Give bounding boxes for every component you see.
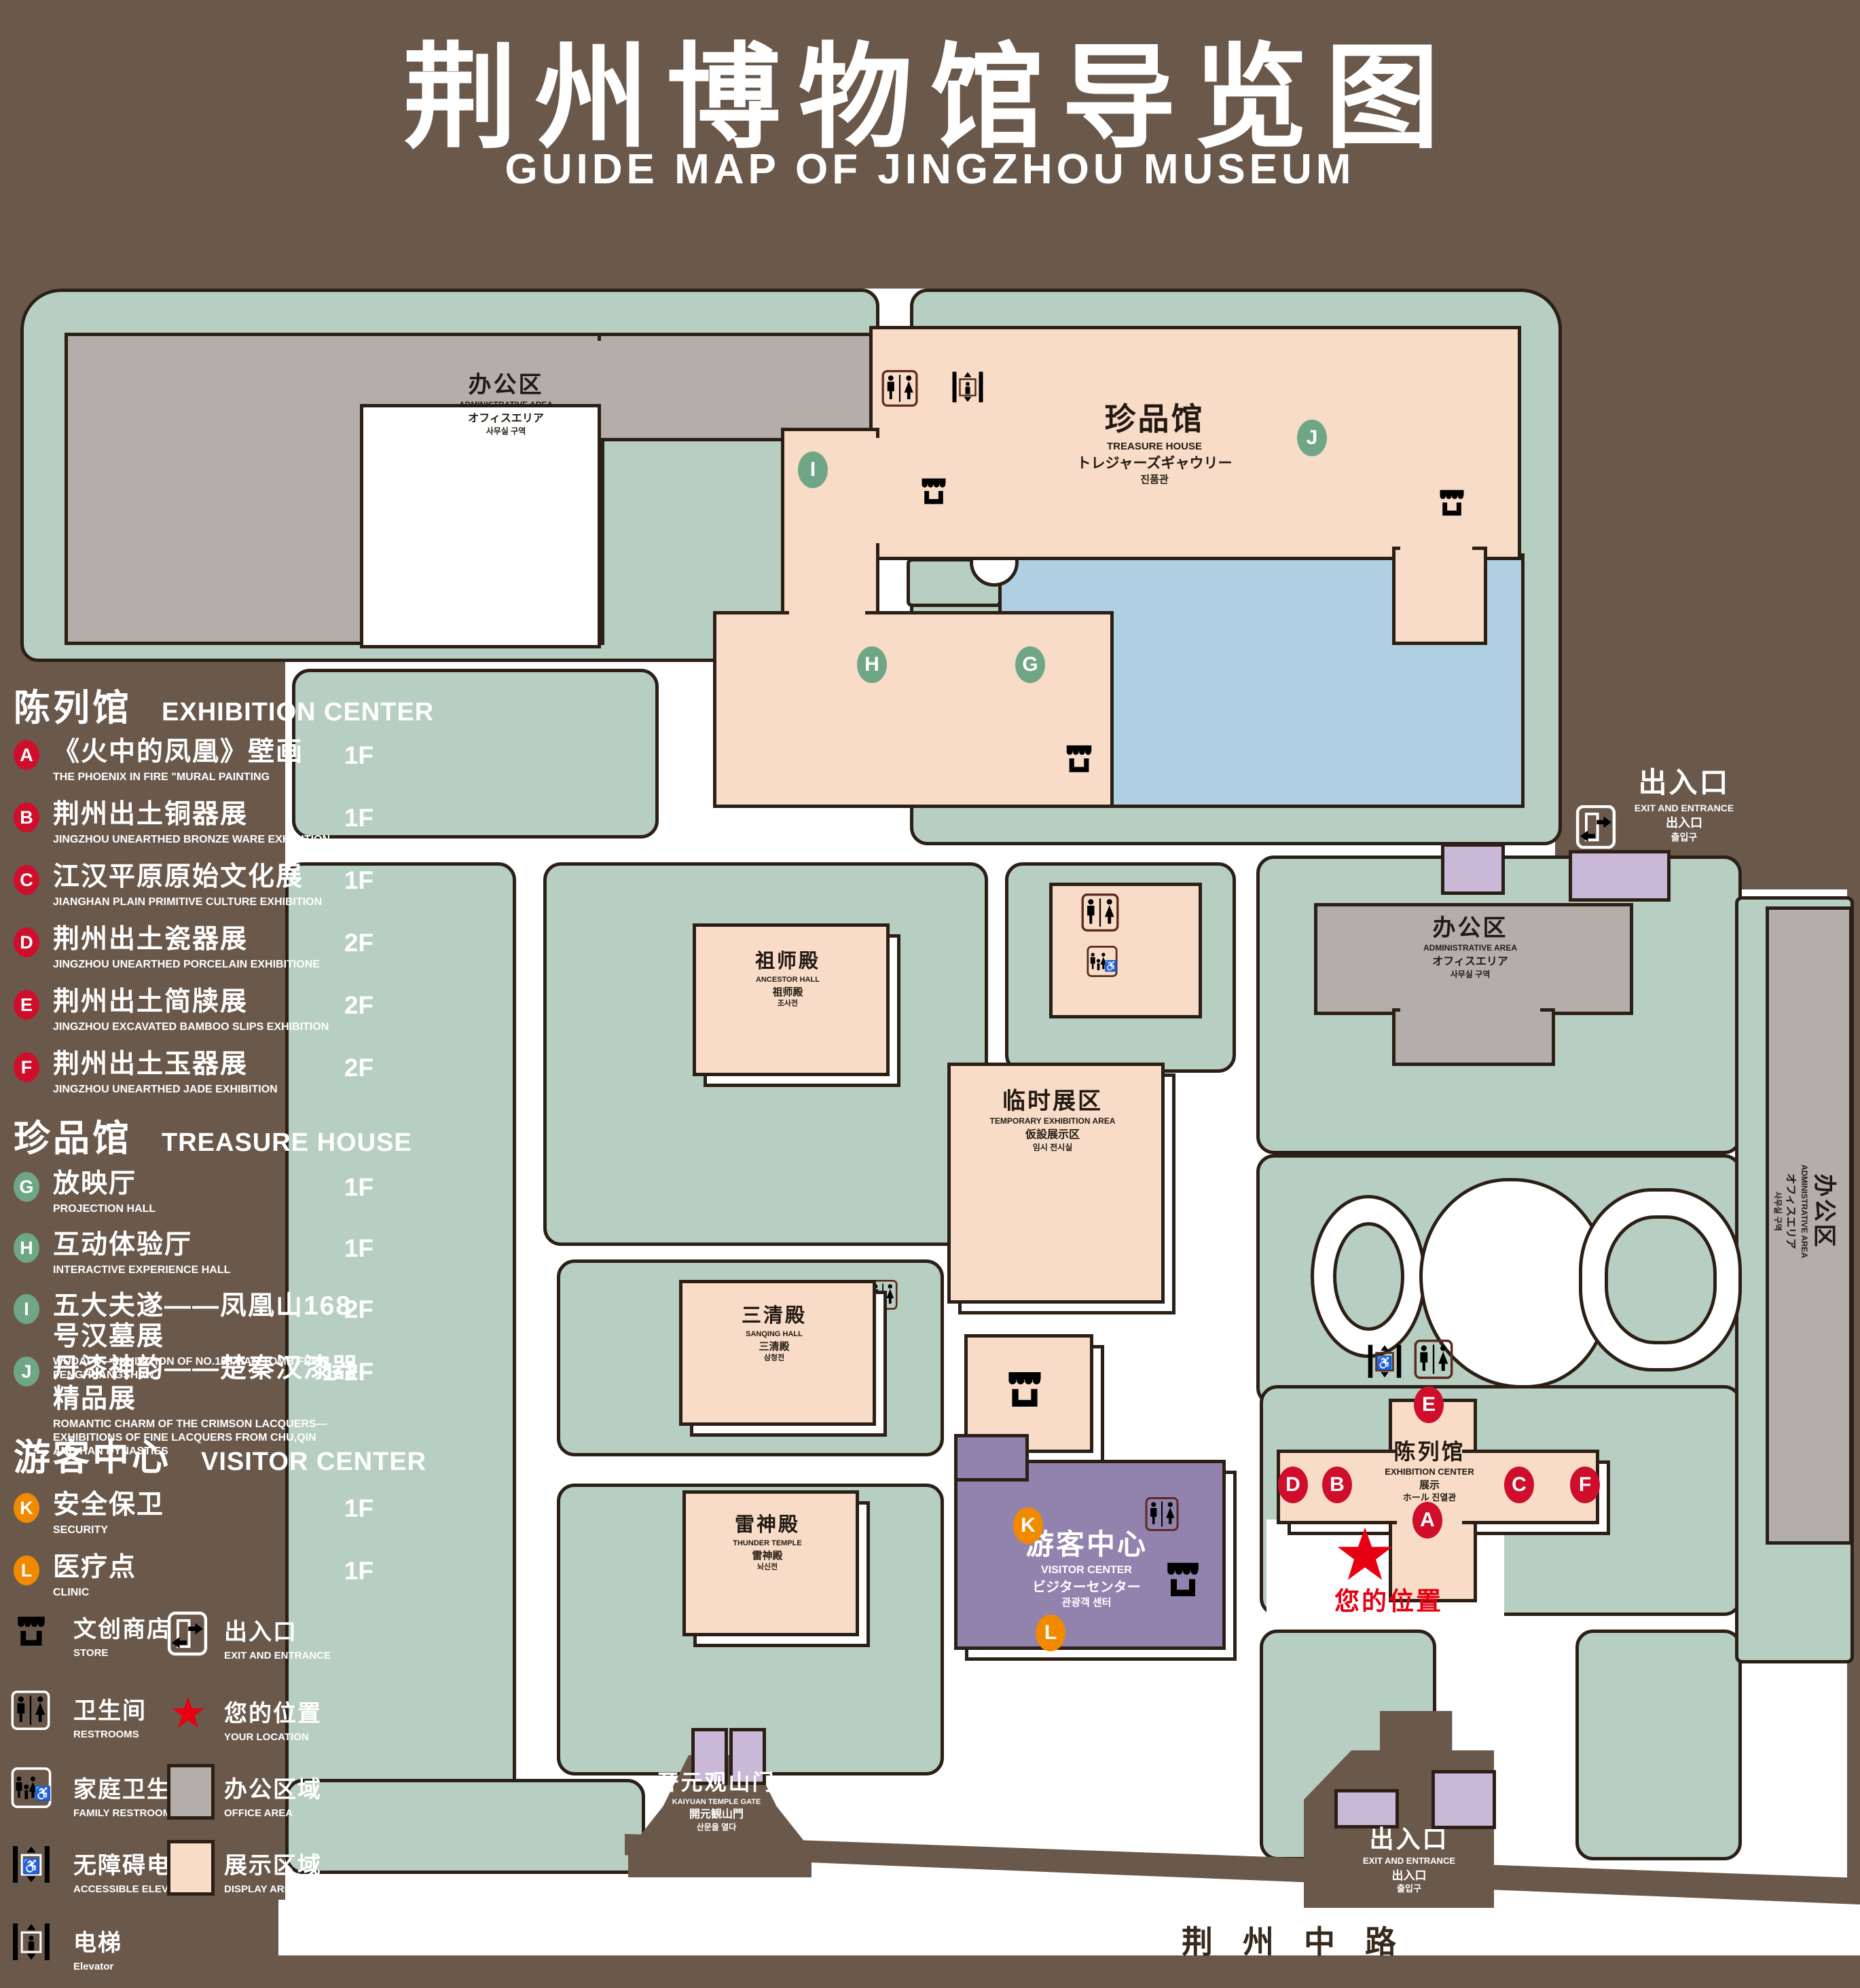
map-marker-f: F <box>1570 1467 1600 1503</box>
marker-badge: F <box>14 1052 39 1082</box>
store-icon <box>1436 483 1467 523</box>
road-name: 荆州中路 <box>1059 1917 1548 1962</box>
legend-item-b: B 荆州出土铜器展 JINGZHOU UNEARTHED BRONZE WARE… <box>14 800 373 847</box>
admin-nw-label: 办公区 ADMINISTRATIVE AREA オフィスエリア 사무실 구역 <box>370 370 642 437</box>
map-marker-k: K <box>1013 1507 1043 1544</box>
admin-courtyard <box>360 404 601 648</box>
seam <box>1400 1001 1540 1018</box>
legend-item-h: H 互动体验厅 INTERACTIVE EXPERIENCE HALL 1F <box>14 1230 373 1277</box>
map-marker-h: H <box>857 646 887 683</box>
map-marker-i: I <box>798 452 828 488</box>
store-icon <box>14 1612 49 1651</box>
office-area-swatch <box>167 1764 215 1820</box>
legend-item-f: F 荆州出土玉器展 JINGZHOU UNEARTHED JADE EXHIBI… <box>14 1050 373 1097</box>
legend-symbol-elevator: 电梯 Elevator <box>73 1924 122 1972</box>
marker-badge: L <box>14 1556 39 1585</box>
display-area-swatch <box>167 1840 215 1896</box>
treasure-house-east-wing <box>1392 547 1487 645</box>
legend-symbol-store: 文创商店 STORE <box>73 1610 171 1659</box>
accessible-elevator-icon <box>1366 1339 1403 1384</box>
seam <box>961 1460 1017 1476</box>
exit-northeast-label: 出入口 EXIT AND ENTRANCE 出入口 출입구 <box>1603 765 1766 843</box>
elevator-icon <box>951 365 985 409</box>
legend-symbol-restrooms: 卫生间 RESTROOMS <box>73 1692 147 1740</box>
guide-map-page: 荆州博物馆导览图 GUIDE MAP OF JINGZHOU MUSEUM 办公… <box>0 0 1860 1988</box>
marker-badge: H <box>14 1233 39 1263</box>
map-marker-g: G <box>1015 646 1045 683</box>
legend-section-treasure-house: 珍品馆TREASURE HOUSE <box>14 1108 412 1162</box>
store-icon <box>1063 739 1095 779</box>
green-area-south-two <box>1575 1630 1742 1860</box>
garden-island-east <box>1605 1215 1717 1344</box>
sanqing-hall-label: 三清殿 SANQING HALL 三清殿 삼청전 <box>686 1304 862 1363</box>
family-restroom-icon <box>11 1760 52 1816</box>
marker-badge: A <box>14 740 39 770</box>
store-icon <box>1163 1556 1203 1604</box>
green-area-southwest <box>285 1779 645 1874</box>
legend-symbol-exit: 出入口 EXIT AND ENTRANCE <box>224 1613 331 1661</box>
your-location-icon <box>1336 1526 1393 1583</box>
kaiyuan-gate-label: 开元观山门 KAIYUAN TEMPLE GATE 開元観山門 산문을 열다 <box>615 1769 818 1833</box>
small-building <box>1441 843 1505 895</box>
legend-symbol-office-area: 办公区域 OFFICE AREA <box>224 1771 322 1819</box>
temporary-exhibition-label: 临时展区 TEMPORARY EXHIBITION AREA 仮設展示区 임시 … <box>934 1086 1171 1153</box>
legend-item-d: D 荆州出土瓷器展 JINGZHOU UNEARTHED PORCELAIN E… <box>14 925 373 972</box>
restroom-icon <box>1414 1336 1453 1382</box>
garden-island-west <box>1333 1222 1404 1331</box>
ancestor-hall-label: 祖师殿 ANCESTOR HALL 祖师殿 조사전 <box>699 949 876 1009</box>
admin-east-label: 办公区 ADMINISTRATIVE AREA オフィスエリア 사무실 구역 <box>1334 913 1606 980</box>
legend-item-l: L 医疗点 CLINIC 1F <box>14 1553 373 1600</box>
map-marker-e: E <box>1414 1386 1444 1423</box>
legend-section-visitor-center: 游客中心VISITOR CENTER <box>14 1427 426 1481</box>
map-marker-j: J <box>1297 420 1327 456</box>
small-building <box>1432 1770 1496 1829</box>
seam <box>864 438 881 543</box>
small-building <box>1569 850 1671 902</box>
restroom-building <box>1049 883 1202 1018</box>
store-icon <box>918 472 949 511</box>
store-icon <box>1004 1365 1046 1415</box>
page-subtitle: GUIDE MAP OF JINGZHOU MUSEUM <box>0 145 1860 194</box>
exit-icon <box>166 1606 209 1661</box>
marker-badge: I <box>14 1294 39 1324</box>
restroom-icon <box>1081 891 1119 934</box>
map-marker-c: C <box>1504 1467 1534 1503</box>
legend-item-c: C 江汉平原原始文化展 JIANGHAN PLAIN PRIMITIVE CUL… <box>14 862 373 909</box>
restroom-icon <box>1145 1494 1179 1534</box>
your-location-icon <box>171 1696 205 1730</box>
exhibition-center-label: 陈列馆 EXHIBITION CENTER 展示 ホール 진열관 <box>1355 1438 1504 1504</box>
legend-item-g: G 放映厅 PROJECTION HALL 1F <box>14 1169 373 1216</box>
seam <box>789 603 865 621</box>
accessible-elevator-icon <box>11 1837 52 1892</box>
family-restroom-icon <box>1087 942 1118 980</box>
restroom-icon <box>881 367 918 410</box>
legend-item-k: K 安全保卫 SECURITY 1F <box>14 1490 373 1537</box>
elevator-icon <box>11 1915 52 1969</box>
your-location-label: 您的位置 <box>1307 1581 1470 1617</box>
map-marker-a: A <box>1412 1502 1442 1539</box>
marker-badge: J <box>14 1357 39 1386</box>
admin-side-label: 办公区 ADMINISTRATIVE AREA オフィスエリア 사무실 구역 <box>1772 1109 1839 1313</box>
treasure-house-label: 珍品馆 TREASURE HOUSE トレジャーズギャウリー 진품관 <box>1019 399 1290 486</box>
marker-badge: D <box>14 927 39 957</box>
restroom-icon <box>11 1682 50 1738</box>
exit-south-label: 出入口 EXIT AND ENTRANCE 出入口 출입구 <box>1328 1824 1491 1895</box>
marker-badge: K <box>14 1493 39 1523</box>
marker-badge: C <box>14 865 39 895</box>
seam <box>1400 543 1472 558</box>
marker-badge: G <box>14 1172 39 1202</box>
legend-section-exhibition-center: 陈列馆EXHIBITION CENTER <box>14 678 434 731</box>
map-marker-b: B <box>1322 1467 1352 1503</box>
legend-symbol-display-area: 展示区域 DISPLAY AREA <box>224 1847 322 1895</box>
map-marker-d: D <box>1278 1467 1308 1503</box>
small-building <box>1334 1789 1399 1828</box>
legend-item-a: A 《火中的凤凰》壁画 THE PHOENIX IN FIRE "MURAL P… <box>14 737 373 784</box>
map-marker-l: L <box>1036 1615 1065 1651</box>
legend-item-e: E 荆州出土简牍展 JINGZHOU EXCAVATED BAMBOO SLIP… <box>14 987 373 1034</box>
treasure-house-south-wing <box>713 611 1114 808</box>
marker-badge: B <box>14 803 39 832</box>
marker-badge: E <box>14 990 39 1020</box>
thunder-temple-label: 雷神殿 THUNDER TEMPLE 雷神殿 뇌신전 <box>682 1513 852 1572</box>
legend-symbol-your-location: 您的位置 YOUR LOCATION <box>224 1695 322 1743</box>
